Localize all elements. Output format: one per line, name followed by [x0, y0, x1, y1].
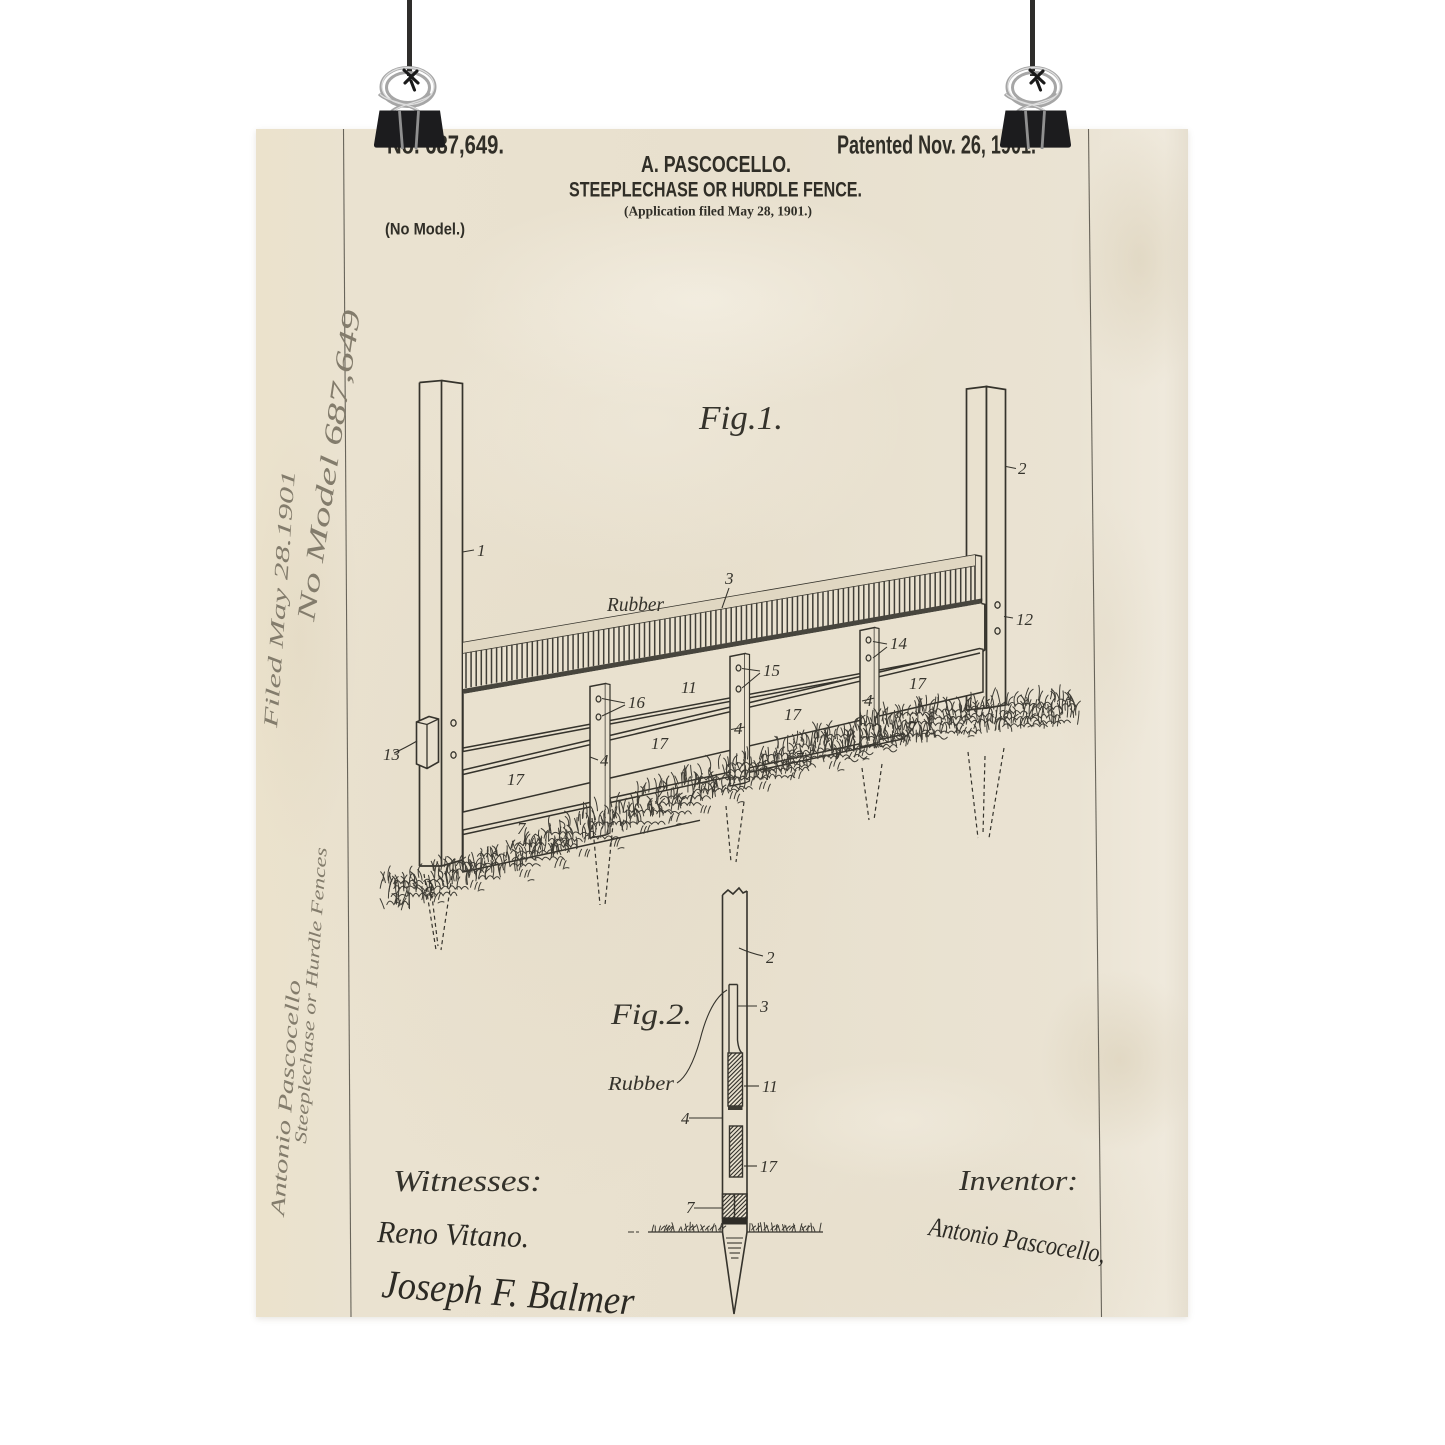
svg-text:17: 17 [651, 734, 670, 753]
svg-text:STEEPLECHASE OR HURDLE FENCE.: STEEPLECHASE OR HURDLE FENCE. [569, 179, 862, 202]
svg-text:(No Model.): (No Model.) [385, 221, 465, 239]
svg-text:A. PASCOCELLO.: A. PASCOCELLO. [641, 151, 791, 177]
svg-text:3: 3 [724, 569, 734, 588]
svg-text:Reno Vitano.: Reno Vitano. [376, 1214, 530, 1254]
svg-text:2: 2 [766, 948, 775, 967]
svg-text:Witnesses:: Witnesses: [393, 1163, 542, 1198]
svg-text:12: 12 [1016, 610, 1034, 629]
svg-text:Inventor:: Inventor: [958, 1165, 1078, 1197]
svg-text:17: 17 [507, 770, 526, 789]
svg-text:13: 13 [383, 745, 400, 764]
svg-text:3: 3 [759, 997, 769, 1016]
svg-text:11: 11 [681, 678, 697, 697]
svg-text:4: 4 [600, 751, 609, 770]
svg-text:17: 17 [760, 1157, 779, 1176]
svg-text:1: 1 [477, 541, 486, 560]
svg-text:11: 11 [762, 1077, 778, 1096]
svg-text:17: 17 [909, 674, 928, 693]
svg-text:Fig.2.: Fig.2. [610, 998, 692, 1031]
svg-text:Rubber: Rubber [606, 594, 664, 616]
svg-text:Fig.1.: Fig.1. [698, 400, 783, 437]
svg-text:14: 14 [890, 634, 908, 653]
svg-text:16: 16 [628, 693, 646, 712]
svg-text:(Application filed May 28, 190: (Application filed May 28, 1901.) [624, 205, 812, 220]
svg-text:Rubber: Rubber [607, 1073, 674, 1095]
svg-text:17: 17 [784, 705, 803, 724]
svg-text:2: 2 [1018, 459, 1027, 478]
svg-text:15: 15 [763, 661, 780, 680]
svg-text:4: 4 [681, 1109, 690, 1128]
